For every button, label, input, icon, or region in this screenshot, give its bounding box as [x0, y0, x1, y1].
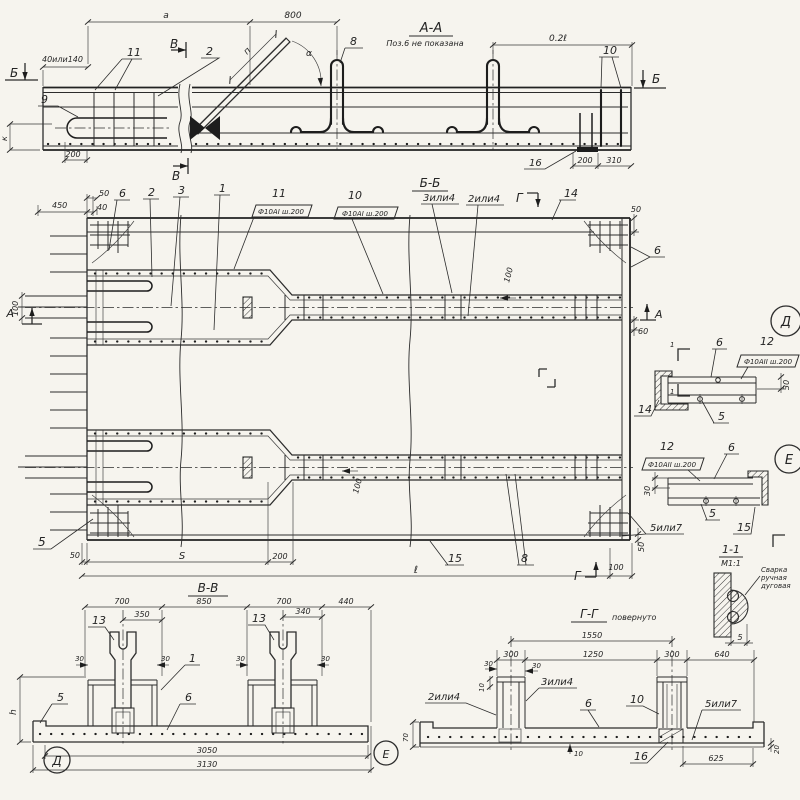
dim-1550: 1550 [582, 631, 602, 640]
dim-50-topleft: 50 [99, 189, 109, 198]
weld-scale: М1:1 [721, 559, 741, 568]
label-pos-6-d: 6 [716, 336, 723, 349]
dim-50-bottomright: 50 [637, 542, 646, 552]
dim-850: 850 [196, 597, 211, 606]
label-pos-10: 10 [348, 189, 362, 202]
label-pos-11: 11 [127, 46, 141, 59]
label-pos-10: 10 [603, 44, 617, 57]
dim-10-gg-cover2: 10 [574, 750, 583, 758]
labels-gg: 2или4 3или4 6 10 5или7 16 [425, 677, 741, 763]
cut-mark-v-top: В [170, 37, 178, 51]
dim-100-band-top: 100 [502, 266, 515, 283]
cut-mark-g-top: Г [516, 191, 524, 205]
label-pos-3: 3 [178, 184, 185, 197]
spec-pos-12-e: Ф10АII ш.200 [648, 461, 697, 469]
label-pos-5or7: 5или7 [650, 523, 683, 534]
dim-300-2: 300 [664, 650, 679, 659]
detail-e-geometry [668, 471, 785, 547]
dim-10-gg-cover1: 10 [478, 683, 486, 692]
dim-200-bottom: 200 [272, 552, 287, 561]
label-pos-5-e: 5 [709, 507, 716, 520]
spec-pos-12-d: Ф10АII ш.200 [744, 358, 793, 366]
dim-625: 625 [708, 754, 723, 763]
cut-mark-a-right: А [654, 308, 663, 321]
section-title-bb: Б-Б [420, 176, 441, 190]
section-title-aa: А-А [419, 21, 442, 36]
dim-50-bottomleft: 50 [70, 551, 80, 560]
label-pos-6-e: 6 [728, 441, 735, 454]
weld-note-line3: дуговая [760, 582, 791, 590]
label-pos-13-right: 13 [252, 612, 266, 625]
dim-S: S [179, 551, 186, 562]
dim-30-vv-4: 30 [321, 655, 330, 663]
label-pos-5: 5 [38, 535, 46, 549]
weld-note-line2: ручная [760, 574, 787, 582]
cut-mark-b-left: Б [10, 66, 18, 80]
label-pos-15: 15 [448, 552, 462, 565]
dim-300-1: 300 [503, 650, 518, 659]
dim-02l: 0.2ℓ [549, 34, 567, 44]
dim-40or140: 40или140 [42, 55, 83, 64]
plan-geometry [18, 215, 633, 547]
drawing-canvas: А-А Поз.6 не показана а 800 0.2ℓ 40или14 [0, 0, 800, 800]
dim-450: 450 [52, 201, 67, 210]
label-pos-2or4-gg: 2или4 [428, 692, 460, 703]
label-pos-3or4: 3или4 [423, 193, 455, 204]
dim-30-d: 30 [782, 380, 791, 390]
dim-h: h [9, 709, 19, 715]
label-pos-12-e: 12 [660, 440, 674, 453]
dim-100-bottomright: 100 [608, 563, 623, 572]
label-pos-12-d: 12 [760, 335, 774, 348]
label-pos-16-gg: 16 [634, 750, 648, 763]
label-pos-15-e: 15 [737, 521, 751, 534]
label-pos-5or7-gg: 5или7 [705, 699, 738, 710]
label-pos-8: 8 [350, 35, 357, 48]
weld-title: 1-1 [722, 543, 740, 556]
dim-l: ℓ [414, 565, 418, 576]
dim-a: а [163, 11, 169, 21]
section-aa: А-А Поз.6 не показана а 800 0.2ℓ 40или14 [0, 11, 666, 183]
dim-30-vv-1: 30 [75, 655, 84, 663]
dim-310: 310 [606, 156, 621, 165]
label-pos-5-vv: 5 [57, 691, 64, 704]
section-title-vv: В-В [198, 581, 219, 595]
dim-30-gg-2: 30 [532, 662, 541, 670]
label-pos-2or4: 2или4 [468, 194, 500, 205]
dim-350: 350 [134, 610, 149, 619]
label-pos-14-d: 14 [638, 403, 652, 416]
detail-letter-e: Е [785, 453, 794, 468]
dim-70: 70 [402, 733, 410, 742]
dim-p: п [242, 46, 253, 57]
spec-pos-11: Ф10АI ш.200 [258, 208, 305, 216]
label-pos-16: 16 [529, 158, 542, 169]
label-pos-13-left: 13 [92, 614, 106, 627]
dim-700-1: 700 [114, 597, 129, 606]
label-pos-5-d: 5 [718, 410, 725, 423]
label-pos-1: 1 [219, 182, 226, 195]
section-title-gg: Г-Г [580, 607, 599, 621]
cut-mark-1-bottom: 1 [670, 388, 674, 396]
weld-dim-5: 5 [737, 633, 742, 642]
label-pos-2: 2 [148, 186, 155, 199]
dim-30-gg-1: 30 [484, 660, 493, 668]
dim-1250: 1250 [583, 650, 603, 659]
label-pos-6-vv: 6 [185, 691, 192, 704]
labels-aa: Б Б В В 9 11 2 8 10 16 [5, 35, 666, 183]
label-pos-2: 2 [206, 45, 213, 58]
dim-30-vv-3: 30 [236, 655, 245, 663]
dim-k: к [0, 136, 9, 141]
dim-3130: 3130 [197, 760, 217, 769]
section-vv: В-В 700 850 700 440 350 340 30 30 30 30 … [9, 581, 398, 773]
dim-40-topleft: 40 [97, 203, 107, 212]
dim-640: 640 [714, 650, 729, 659]
label-pos-1-vv: 1 [189, 652, 196, 665]
label-pos-6-right: 6 [654, 244, 661, 257]
dim-200-right: 200 [577, 156, 592, 165]
label-pos-11: 11 [272, 187, 286, 200]
label-pos-14: 14 [564, 187, 578, 200]
angle-alpha: α [306, 49, 312, 59]
section-title-gg-note: повернуто [612, 613, 656, 622]
dim-340: 340 [295, 607, 310, 616]
spec-pos-10: Ф10АI ш.200 [342, 210, 389, 218]
dimensions-vv: 700 850 700 440 350 340 30 30 30 30 h 30… [9, 597, 374, 773]
section-note-aa: Поз.6 не показана [386, 39, 463, 48]
weld-note-line1: Сварка [761, 566, 787, 574]
weld-detail: 1-1 М1:1 Сварка ручная дуговая 5 [714, 543, 791, 646]
dim-200-left: 200 [65, 150, 80, 159]
ref-circle-e: Е [383, 748, 390, 761]
detail-d: Д 1 1 6 12 Ф10АII ш.200 14 5 30 [634, 306, 800, 423]
vv-geometry [33, 610, 368, 745]
label-pos-6-gg: 6 [585, 697, 592, 710]
cut-mark-v-bottom: В [172, 169, 180, 183]
dim-700-2: 700 [276, 597, 291, 606]
label-pos-9: 9 [41, 93, 48, 106]
dim-440: 440 [338, 597, 353, 606]
detail-letter-d: Д [780, 315, 791, 330]
dim-100-left: 100 [11, 301, 20, 316]
dim-50-topright: 50 [631, 205, 641, 214]
dim-3050: 3050 [197, 746, 217, 755]
drawing-sheet: А-А Поз.6 не показана а 800 0.2ℓ 40или14 [0, 0, 800, 800]
plan-bb: Б-Б 450 50 40 6 2 3 1 11 [5, 176, 684, 583]
label-pos-10-gg: 10 [630, 693, 644, 706]
label-pos-3or4-gg: 3или4 [541, 677, 573, 688]
dim-30-e: 30 [643, 486, 652, 496]
dim-30-vv-2: 30 [161, 655, 170, 663]
labels-vv: 13 13 1 5 6 Д Е [40, 612, 398, 773]
dim-60: 60 [638, 327, 648, 336]
detail-d-geometry [655, 349, 756, 410]
dim-20: 20 [773, 745, 781, 754]
ref-circle-d: Д [51, 754, 61, 768]
cut-mark-b-right: Б [652, 72, 660, 86]
dim-800: 800 [284, 11, 301, 21]
cut-mark-1-top: 1 [670, 341, 674, 349]
label-pos-6: 6 [119, 187, 126, 200]
